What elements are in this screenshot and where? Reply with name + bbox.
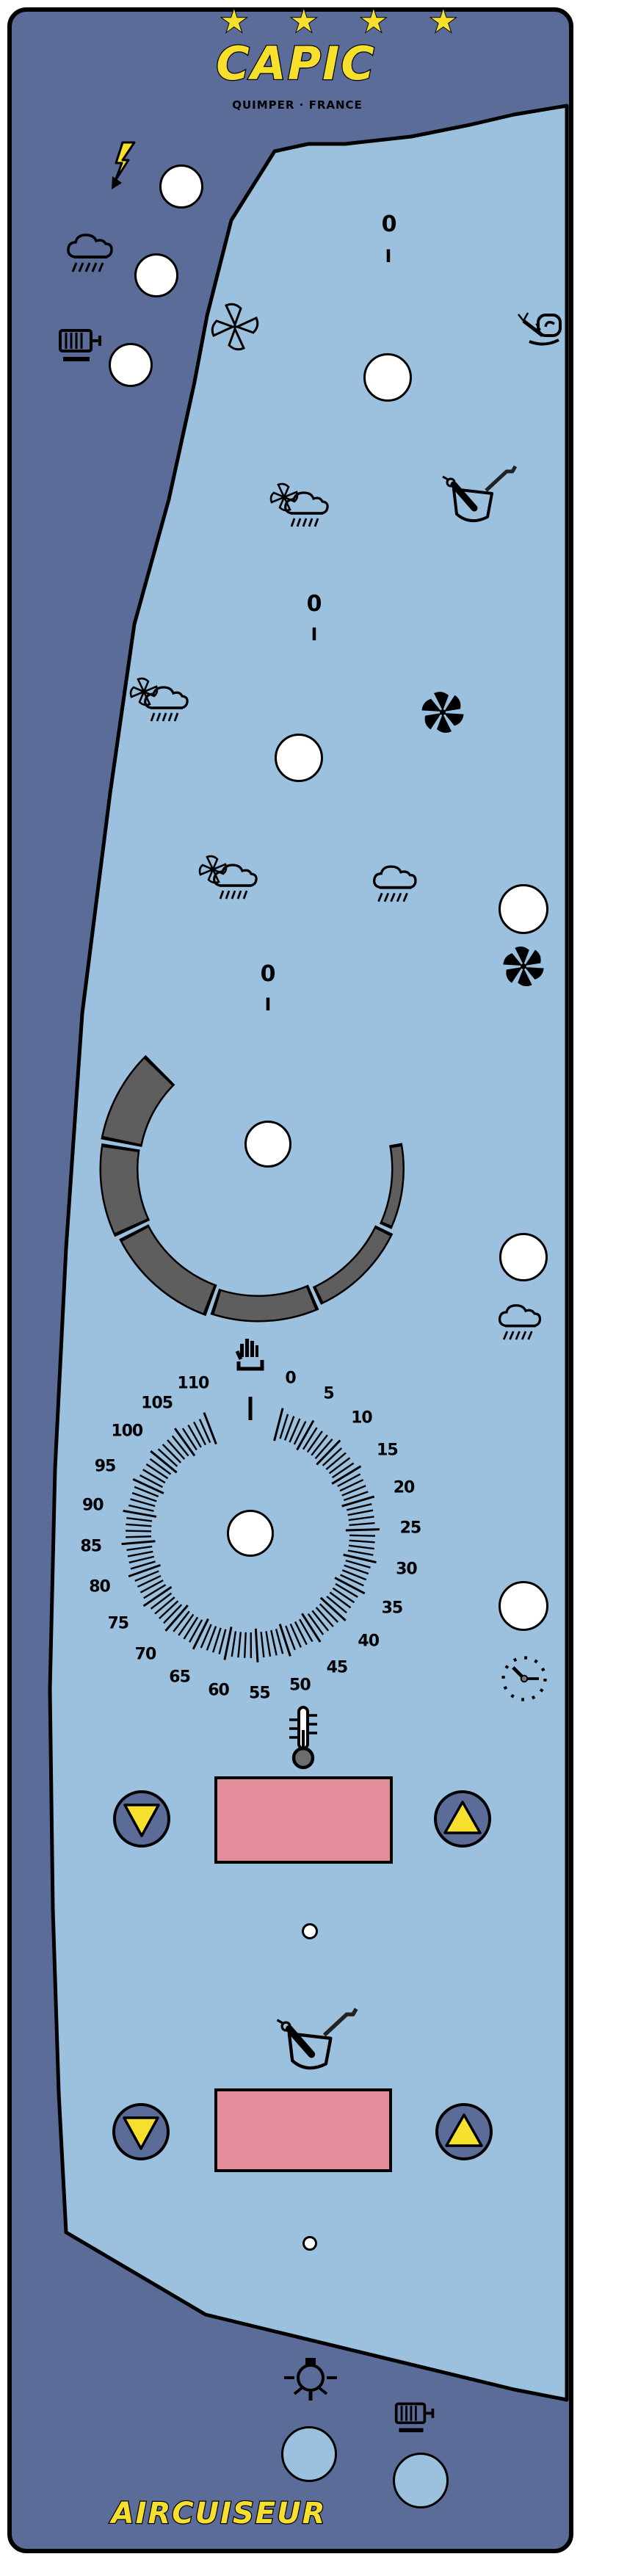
- clock-icon: [496, 1651, 552, 1707]
- panel-scan: ★ ★ ★ ★ CAPIC QUIMPER · FRANCE: [0, 0, 627, 2576]
- cloud-rain-icon: [371, 859, 430, 908]
- power-off-mark: 0: [257, 963, 279, 985]
- dial-label-10: 10: [351, 1409, 372, 1428]
- dial-label-85: 85: [80, 1538, 101, 1556]
- snail-icon: [516, 309, 565, 349]
- dial-label-95: 95: [95, 1457, 116, 1475]
- power-on-mark: I: [303, 626, 325, 643]
- dial-label-30: 30: [396, 1560, 417, 1579]
- brand-stars: ★ ★ ★ ★: [220, 3, 408, 39]
- dial-label-70: 70: [135, 1645, 156, 1663]
- mode-lamp: [275, 734, 323, 782]
- arrow-up-icon: [440, 1796, 485, 1842]
- pan-down-button[interactable]: [112, 2103, 170, 2160]
- temp-up-button[interactable]: [434, 1790, 491, 1848]
- brand-subtitle: QUIMPER · FRANCE: [191, 98, 404, 112]
- cloud-rain-icon: [65, 228, 126, 278]
- cloud-rain-icon: [496, 1298, 554, 1345]
- dial-label-35: 35: [382, 1599, 403, 1617]
- pan-up-button[interactable]: [435, 2103, 493, 2160]
- fan-cloud-rain-icon: [195, 853, 269, 911]
- dial-label-105: 105: [141, 1394, 173, 1413]
- product-name: AIRCUISEUR: [87, 2497, 351, 2530]
- dial-label-20: 20: [394, 1479, 415, 1497]
- fan-cloud-rain-icon: [267, 481, 340, 538]
- fan-cloud-rain-icon: [126, 676, 200, 733]
- dial-label-80: 80: [89, 1577, 110, 1596]
- motor-icon: [57, 323, 113, 366]
- tilting-pan-icon: [270, 2003, 366, 2077]
- thermometer-icon: [286, 1705, 320, 1773]
- combi-lamp: [499, 884, 548, 934]
- pan-display: [214, 2088, 392, 2172]
- fan-solid-icon: [419, 689, 466, 736]
- light-button[interactable]: [281, 2426, 337, 2482]
- tilting-pan-icon: [439, 461, 521, 529]
- power-off-mark: 0: [303, 593, 325, 615]
- dial-label-15: 15: [377, 1441, 398, 1459]
- dial-label-100: 100: [111, 1422, 142, 1441]
- temp-display: [214, 1776, 393, 1864]
- boil-lamp: [159, 164, 203, 209]
- temp-down-button[interactable]: [113, 1790, 170, 1848]
- arrow-down-icon: [118, 2109, 164, 2154]
- power-knob-hole[interactable]: [244, 1121, 291, 1168]
- pan-led: [302, 2236, 317, 2251]
- power-on-mark: I: [377, 247, 399, 265]
- inner-panel-shape: [0, 0, 627, 2576]
- fan-solid-icon: [501, 944, 546, 989]
- dial-label-45: 45: [327, 1659, 348, 1677]
- steam-lamp-2: [499, 1233, 548, 1281]
- brand-logo: CAPIC: [175, 37, 417, 90]
- dial-label-40: 40: [358, 1632, 379, 1651]
- dial-label-50: 50: [289, 1676, 311, 1695]
- hand-icon: [233, 1336, 268, 1378]
- motor-icon: [394, 2397, 445, 2436]
- dial-label-60: 60: [208, 1681, 229, 1699]
- dial-label-90: 90: [82, 1497, 104, 1515]
- dial-label-5: 5: [323, 1384, 333, 1403]
- light-bulb-icon: [280, 2354, 341, 2418]
- motor-button[interactable]: [393, 2453, 449, 2508]
- timer-lamp: [499, 1581, 548, 1631]
- dial-label-0: 0: [285, 1369, 295, 1387]
- dial-label-65: 65: [169, 1668, 190, 1686]
- speed-lamp: [363, 353, 412, 402]
- fan-icon: [210, 302, 260, 352]
- lightning-icon: [110, 141, 144, 200]
- motor-lamp: [109, 343, 153, 387]
- arrow-up-icon: [441, 2109, 487, 2154]
- dial-label-55: 55: [249, 1684, 270, 1702]
- timer-knob-hole[interactable]: [227, 1510, 274, 1557]
- arrow-down-icon: [119, 1796, 164, 1842]
- dial-label-75: 75: [107, 1614, 128, 1632]
- power-off-mark: 0: [378, 214, 400, 236]
- dial-label-110: 110: [177, 1375, 209, 1393]
- power-on-mark: I: [257, 996, 279, 1013]
- steam-lamp: [134, 253, 178, 297]
- temp-led: [302, 1923, 318, 1939]
- dial-label-25: 25: [400, 1519, 421, 1538]
